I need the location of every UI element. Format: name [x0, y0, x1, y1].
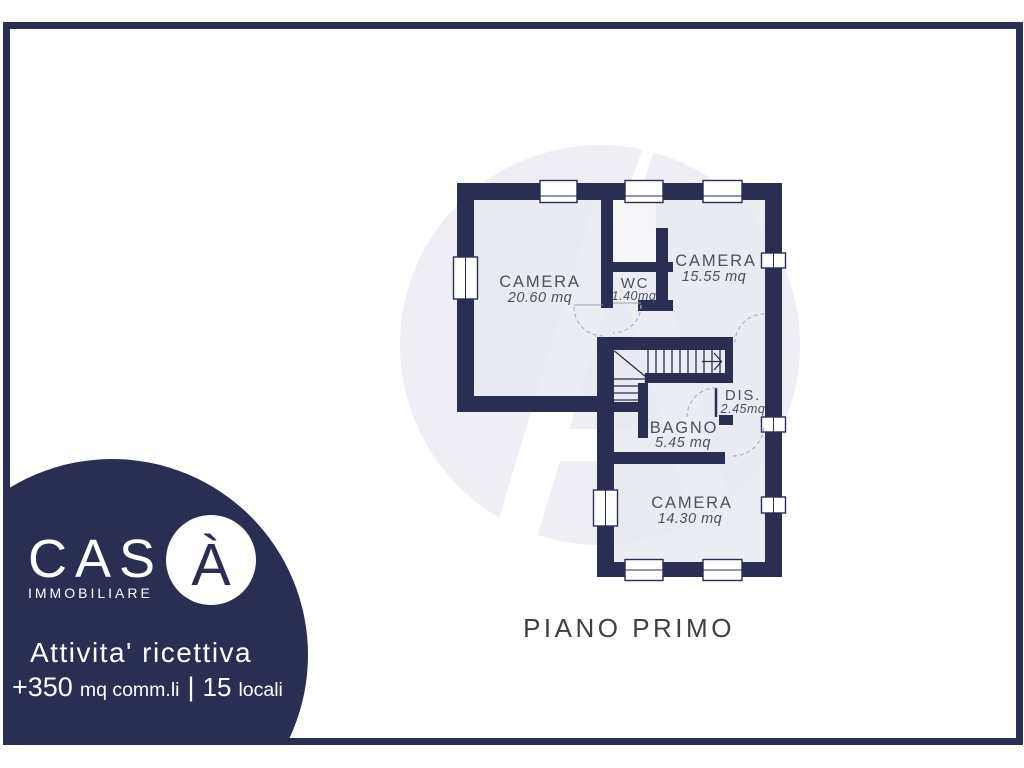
wall-stair-top — [597, 337, 733, 350]
plan-title: PIANO PRIMO — [523, 613, 735, 643]
room-label-camera-mid: CAMERA — [675, 252, 756, 270]
page-frame: CAMERA 20.60 mq WC 1.40mq CAMERA 15.55 m… — [3, 22, 1023, 745]
wall-stair-bottom — [645, 373, 733, 383]
stat-separator: | — [188, 672, 195, 702]
window-top-1 — [540, 181, 577, 203]
stat-rooms-value: 15 — [203, 672, 232, 702]
wall-right — [765, 183, 782, 577]
window-right-1 — [762, 253, 786, 268]
logo-text-main: CAS — [28, 529, 163, 589]
window-top-2 — [625, 181, 663, 203]
room-area-camera-mid: 15.55 mq — [682, 269, 746, 285]
wall-bagno-left — [638, 383, 648, 438]
logo-subtitle: IMMOBILIARE — [28, 585, 153, 601]
wall-dis-stub — [719, 415, 733, 425]
wall-bottom-upper-room — [457, 396, 614, 412]
stat-rooms-unit: locali — [238, 679, 282, 701]
window-right-2 — [762, 417, 786, 432]
window-left-lower — [594, 490, 618, 526]
room-area-dis: 2.45mq — [720, 402, 766, 416]
window-top-3 — [703, 181, 742, 203]
wall-stair-right — [725, 337, 733, 383]
room-label-camera-large: CAMERA — [499, 273, 580, 291]
stat-area-unit: mq comm.li — [80, 679, 180, 701]
niche-area — [613, 200, 656, 262]
floor-plan-canvas: CAMERA 20.60 mq WC 1.40mq CAMERA 15.55 m… — [10, 29, 1016, 738]
stat-area-value: +350 — [12, 672, 73, 702]
wall-wc-right — [656, 228, 668, 308]
room-area-bagno: 5.45 mq — [655, 435, 711, 451]
brand-logo: CAS À IMMOBILIARE Attivita' ricettiva +3… — [10, 459, 308, 738]
wall-bagno-bottom — [611, 452, 725, 464]
logo-tagline: Attivita' ricettiva — [30, 637, 252, 668]
window-bottom-1 — [625, 560, 663, 581]
logo-text-accent-letter: À — [191, 532, 231, 598]
window-bottom-2 — [703, 560, 742, 581]
room-area-wc: 1.40mq — [612, 289, 657, 303]
room-area-camera-large: 20.60 mq — [507, 290, 572, 306]
room-label-camera-small: CAMERA — [651, 494, 732, 512]
window-left-upper — [454, 257, 478, 299]
window-right-3 — [762, 497, 786, 513]
room-area-camera-small: 14.30 mq — [658, 511, 722, 527]
